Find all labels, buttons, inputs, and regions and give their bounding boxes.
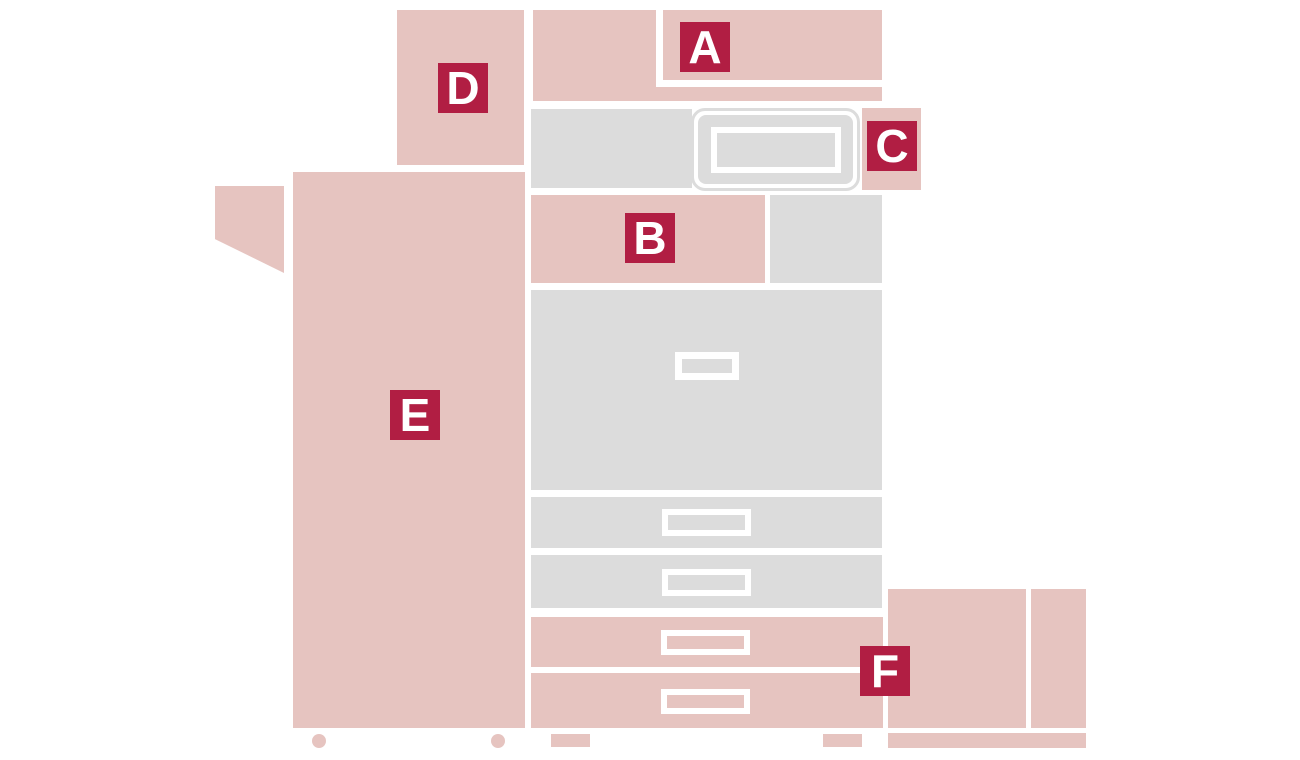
foot-left bbox=[551, 734, 590, 747]
printer-parts-diagram: A B C D E F bbox=[0, 0, 1300, 760]
label-e: E bbox=[390, 390, 440, 440]
caster-right bbox=[491, 734, 505, 748]
deck-notch-vertical bbox=[656, 10, 663, 81]
main-body-handle bbox=[675, 352, 739, 380]
label-f: F bbox=[860, 646, 910, 696]
main-body-block bbox=[531, 290, 882, 490]
deck-notch-horizontal bbox=[656, 80, 882, 87]
part-e-finisher-block bbox=[293, 172, 525, 728]
part-f-base bbox=[888, 733, 1086, 748]
label-a: A bbox=[680, 22, 730, 72]
label-d: D bbox=[438, 63, 488, 113]
foot-right bbox=[823, 734, 862, 747]
part-f-tray-side bbox=[1031, 589, 1086, 728]
paper-tray-2-handle bbox=[662, 569, 751, 596]
optional-tray-3-handle bbox=[661, 630, 750, 655]
operation-panel-display bbox=[711, 127, 841, 173]
front-right-panel-block bbox=[770, 195, 882, 283]
label-c: C bbox=[867, 121, 917, 171]
label-b: B bbox=[625, 213, 675, 263]
scanner-bar-block bbox=[531, 109, 692, 188]
caster-left bbox=[312, 734, 326, 748]
finisher-output-tray bbox=[215, 186, 284, 273]
optional-tray-4-handle bbox=[661, 689, 750, 714]
paper-tray-1-handle bbox=[662, 509, 751, 536]
